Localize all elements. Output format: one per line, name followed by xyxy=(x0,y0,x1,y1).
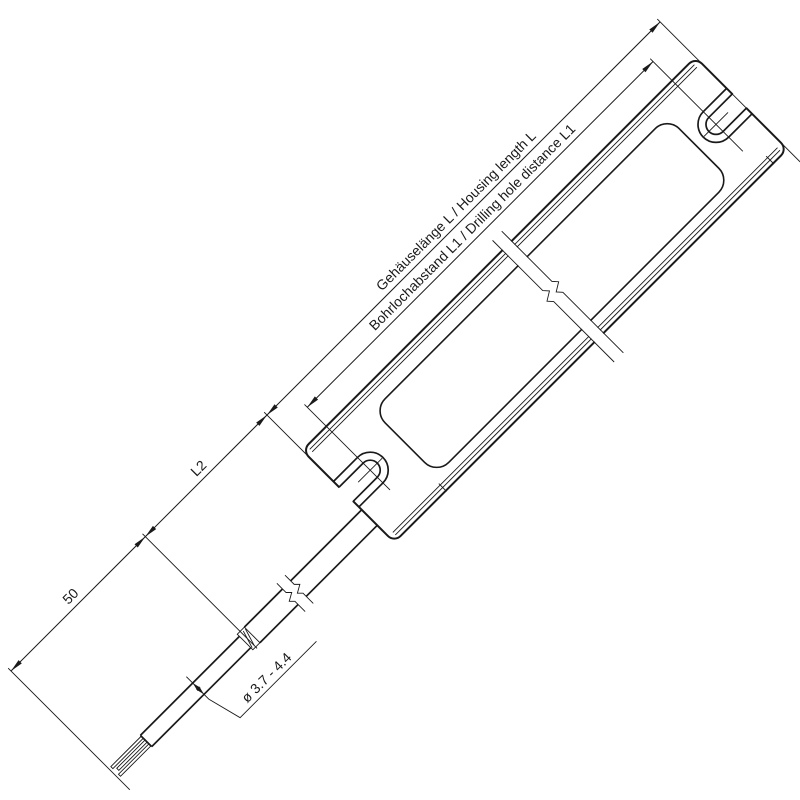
led-driver-dimension-drawing: 50 L2 Gehäuselänge L / Housing length L … xyxy=(0,0,800,800)
technical-drawing-page: 50 L2 Gehäuselänge L / Housing length L … xyxy=(0,0,800,800)
drawing-background xyxy=(0,0,800,800)
